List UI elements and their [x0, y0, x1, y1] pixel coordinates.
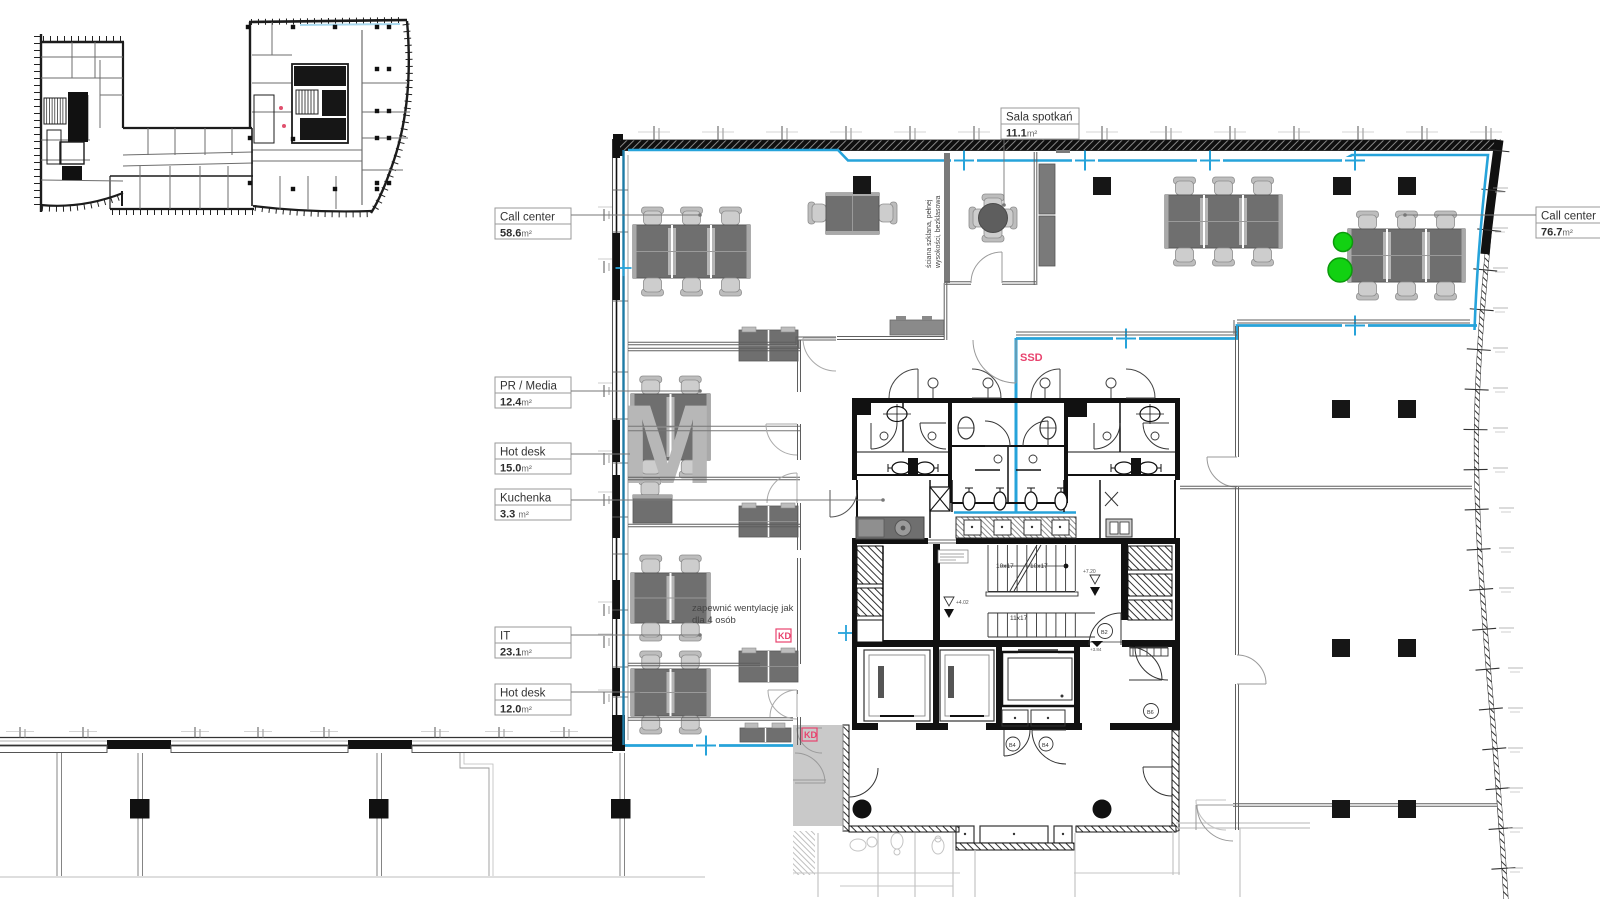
svg-text:Call center: Call center: [1541, 211, 1596, 223]
svg-text:Kuchenka: Kuchenka: [500, 493, 552, 505]
svg-text:Hot desk: Hot desk: [500, 447, 546, 459]
svg-text:12.0m²: 12.0m²: [500, 704, 532, 716]
svg-text:dla 4 osób: dla 4 osób: [692, 615, 736, 626]
svg-text:ściana szklana, pełnej: ściana szklana, pełnej: [926, 199, 933, 268]
svg-text:KD: KD: [804, 730, 817, 740]
svg-text:+7.20: +7.20: [1083, 569, 1096, 575]
svg-text:wysokości, bezklasowa: wysokości, bezklasowa: [935, 196, 942, 269]
svg-text:11x17: 11x17: [1010, 615, 1028, 622]
svg-text:IT: IT: [500, 631, 510, 643]
svg-text:+4.02: +4.02: [956, 600, 969, 606]
svg-text:15.0m²: 15.0m²: [500, 463, 532, 475]
svg-text:SSD: SSD: [1020, 352, 1043, 364]
svg-text:B4: B4: [1009, 743, 1016, 749]
svg-text:PR / Media: PR / Media: [500, 381, 557, 393]
svg-text:Sala spotkań: Sala spotkań: [1006, 112, 1073, 124]
svg-text:+3.84: +3.84: [1090, 647, 1102, 652]
svg-text:12.4m²: 12.4m²: [500, 397, 532, 409]
svg-text:10x17: 10x17: [996, 563, 1014, 570]
svg-text:M: M: [621, 382, 714, 507]
svg-text:B6: B6: [1147, 710, 1154, 716]
svg-text:B4: B4: [1042, 743, 1049, 749]
svg-text:11.1m²: 11.1m²: [1006, 128, 1037, 140]
svg-text:Call center: Call center: [500, 212, 555, 224]
svg-text:76.7m²: 76.7m²: [1541, 227, 1573, 239]
svg-text:Hot desk: Hot desk: [500, 688, 546, 700]
svg-text:3.3 m²: 3.3 m²: [500, 509, 529, 521]
svg-text:B2: B2: [1101, 630, 1108, 636]
svg-text:KD: KD: [778, 631, 791, 641]
svg-text:10x17: 10x17: [1030, 563, 1048, 570]
svg-text:23.1m²: 23.1m²: [500, 647, 532, 659]
svg-text:58.6m²: 58.6m²: [500, 228, 532, 240]
svg-text:zapewnić wentylację jak: zapewnić wentylację jak: [692, 603, 794, 614]
